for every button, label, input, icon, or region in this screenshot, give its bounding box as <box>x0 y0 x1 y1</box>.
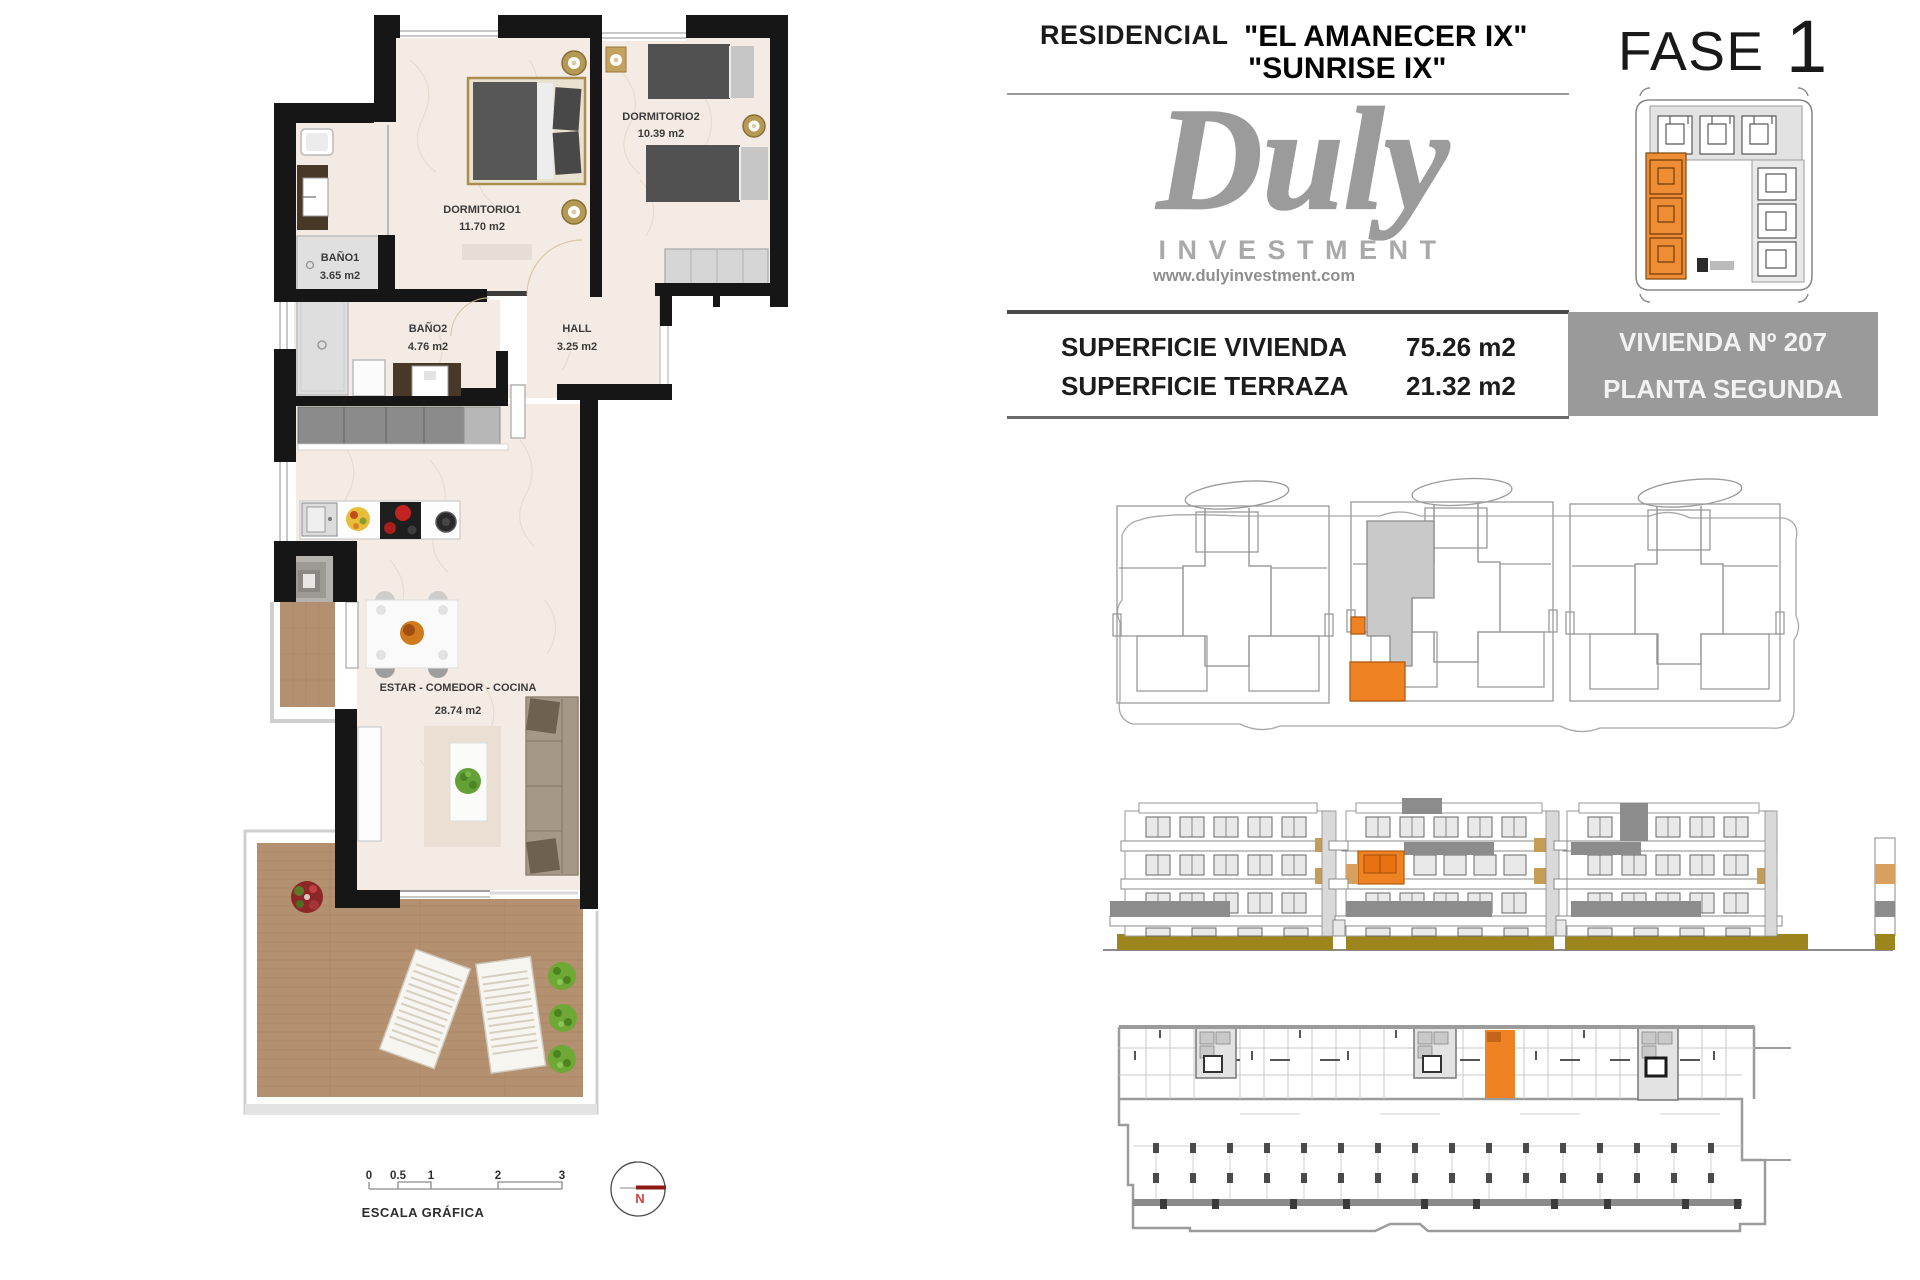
svg-text:www.dulyinvestment.com: www.dulyinvestment.com <box>1152 267 1355 285</box>
svg-text:VIVIENDA Nº 207: VIVIENDA Nº 207 <box>1619 327 1827 357</box>
svg-text:Duly: Duly <box>1155 78 1450 240</box>
svg-text:ESCALA GRÁFICA: ESCALA GRÁFICA <box>362 1205 485 1220</box>
svg-text:INVESTMENT: INVESTMENT <box>1158 235 1447 265</box>
svg-text:3.25 m2: 3.25 m2 <box>557 341 597 353</box>
svg-text:"EL AMANECER IX": "EL AMANECER IX" <box>1244 20 1527 53</box>
svg-text:SUPERFICIE TERRAZA: SUPERFICIE TERRAZA <box>1061 371 1349 401</box>
svg-text:DORMITORIO2: DORMITORIO2 <box>622 111 699 123</box>
svg-text:1: 1 <box>428 1170 435 1182</box>
svg-text:1: 1 <box>1786 5 1827 88</box>
svg-text:BAÑO2: BAÑO2 <box>409 322 448 335</box>
svg-text:10.39 m2: 10.39 m2 <box>638 128 684 140</box>
svg-text:0: 0 <box>366 1170 372 1182</box>
svg-text:SUPERFICIE VIVIENDA: SUPERFICIE VIVIENDA <box>1061 332 1347 362</box>
svg-text:0.5: 0.5 <box>390 1170 407 1182</box>
svg-text:BAÑO1: BAÑO1 <box>321 251 360 264</box>
svg-text:3.65 m2: 3.65 m2 <box>320 270 360 282</box>
svg-text:21.32 m2: 21.32 m2 <box>1406 371 1516 401</box>
svg-text:3: 3 <box>559 1170 565 1182</box>
svg-text:2: 2 <box>495 1170 501 1182</box>
svg-text:N: N <box>635 1191 644 1206</box>
svg-text:DORMITORIO1: DORMITORIO1 <box>443 204 520 216</box>
svg-text:28.74 m2: 28.74 m2 <box>435 705 481 717</box>
svg-text:PLANTA SEGUNDA: PLANTA SEGUNDA <box>1603 374 1843 404</box>
svg-text:FASE: FASE <box>1618 20 1765 82</box>
svg-text:75.26 m2: 75.26 m2 <box>1406 332 1516 362</box>
svg-text:4.76 m2: 4.76 m2 <box>408 341 448 353</box>
svg-text:HALL: HALL <box>562 323 592 335</box>
svg-text:11.70 m2: 11.70 m2 <box>459 221 505 233</box>
svg-text:RESIDENCIAL: RESIDENCIAL <box>1040 20 1229 50</box>
svg-text:ESTAR - COMEDOR - COCINA: ESTAR - COMEDOR - COCINA <box>380 682 537 694</box>
